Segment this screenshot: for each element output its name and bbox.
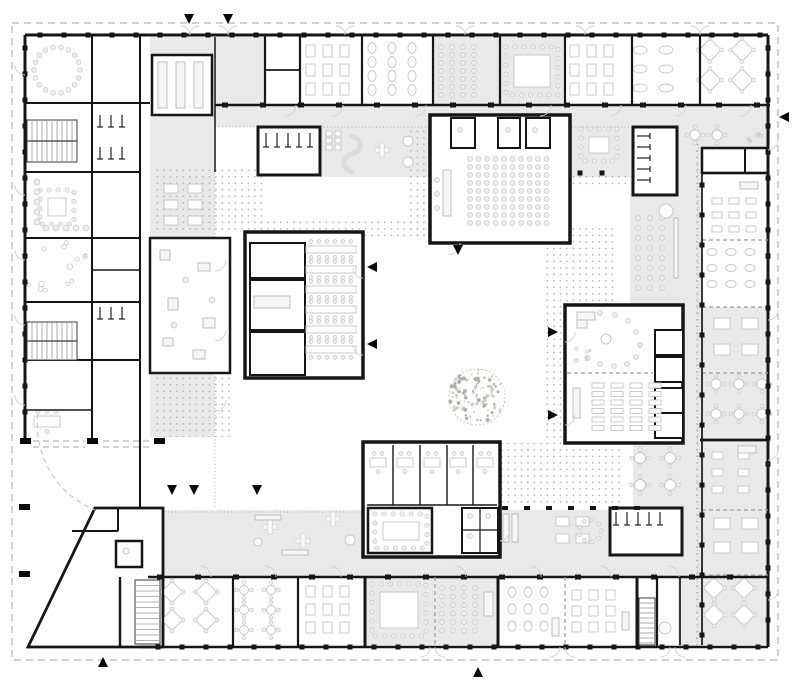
- furniture-round-table-1: [403, 136, 413, 146]
- cell-auditorium-3: [526, 118, 550, 148]
- paved-strip-auditorium: [410, 127, 430, 240]
- column: [154, 438, 165, 444]
- room-wedge-wc: [116, 541, 142, 567]
- furniture-tables-n3: [633, 46, 673, 92]
- driveway-arc: [37, 414, 95, 510]
- fixture-wedge-wc: [123, 548, 129, 554]
- wc-stalls-nw1: [97, 115, 125, 127]
- furniture-roundtables-s1: [235, 581, 281, 640]
- stair-southeast: [639, 598, 655, 645]
- furniture-ovals-n: [368, 43, 416, 96]
- furniture-west-item-3: [168, 298, 178, 310]
- wc-stalls-nw2: [97, 147, 125, 159]
- furniture-desks-s2: [572, 590, 615, 632]
- furniture-e-teacher-desk-2: [738, 446, 756, 453]
- floor-plan-canvas: [0, 0, 800, 683]
- furniture-office-desk-west: [34, 410, 60, 434]
- furniture-e-desks-1: [712, 198, 756, 232]
- furniture-corridor-circle: [659, 204, 673, 218]
- furniture-round-table-3: [345, 535, 355, 545]
- furniture-e-ovals: [707, 249, 755, 288]
- entrance-arrow: [779, 112, 789, 122]
- paved-area-west-2: [152, 375, 232, 437]
- entrance-arrow: [98, 657, 108, 667]
- furniture-west-item-2: [198, 263, 210, 271]
- cell-cafeteria-3: [250, 332, 305, 375]
- stair-west-2: [27, 322, 77, 360]
- entrance-arrow: [252, 485, 262, 495]
- furniture-bench-1: [282, 550, 308, 555]
- furniture-west-item-4: [203, 318, 215, 328]
- cell-auditorium-1: [451, 118, 475, 148]
- furniture-round-table-2: [403, 157, 413, 167]
- room-storage-northeast: [702, 148, 768, 173]
- furniture-square-table-nw: [38, 188, 76, 226]
- furniture-lectern-s: [484, 592, 493, 616]
- furniture-west-item-6: [193, 350, 205, 359]
- room-wc-northeast: [633, 127, 677, 195]
- entrance-arrow: [189, 485, 199, 495]
- stair-west-1: [27, 120, 77, 162]
- furniture-desks-s1: [306, 586, 349, 633]
- floor-plan-page: [0, 0, 800, 683]
- furniture-table-small-room: [659, 622, 671, 634]
- doorposts-nwing: [222, 103, 760, 108]
- room-wc-north: [258, 127, 320, 175]
- entrance-arrow: [367, 262, 377, 272]
- paved-terrace-south: [500, 443, 622, 507]
- cell-cafeteria-1: [250, 243, 305, 278]
- furniture-round-table-4: [254, 538, 262, 546]
- furniture-xtables-sw: [159, 579, 219, 633]
- furniture-desks-n1: [306, 45, 349, 95]
- zone-terrace-east: [633, 443, 702, 507]
- furniture-auditorium-podium: [443, 170, 451, 216]
- furniture-e-teacher-desk-1: [740, 182, 758, 189]
- furniture-ovals-s: [508, 587, 548, 631]
- furniture-desk-s2: [622, 612, 629, 630]
- furniture-shelf-2: [176, 62, 185, 108]
- stair-wedge: [135, 580, 160, 644]
- paved-court-east: [543, 302, 563, 443]
- furniture-music-table: [601, 334, 611, 344]
- furniture-playroom-scatter: [27, 241, 87, 293]
- furniture-shelf-east: [674, 218, 678, 278]
- furniture-chair-circle-nw: [32, 45, 83, 95]
- furniture-desk-s1: [552, 618, 559, 636]
- column: [87, 438, 98, 444]
- furniture-library-lectern: [573, 388, 580, 418]
- furniture-bench-2: [255, 515, 281, 520]
- entrance-arrow: [473, 667, 483, 677]
- furniture-desks-n2: [570, 45, 613, 95]
- furniture-lounge-shelf-2: [512, 514, 518, 542]
- courtyard-tree: [448, 369, 505, 425]
- furniture-piano-a: [577, 312, 595, 320]
- furniture-west-item-1: [160, 250, 170, 260]
- furniture-xtables-ne: [697, 37, 756, 94]
- furniture-west-item-5: [163, 338, 173, 346]
- cell-library-2: [655, 357, 683, 382]
- furniture-shelf-1: [158, 62, 167, 108]
- furniture-lounge-shelf-1: [503, 514, 509, 542]
- furniture-serving-counter: [254, 296, 290, 308]
- entrance-arrow: [167, 485, 177, 495]
- column: [20, 438, 31, 444]
- cell-auditorium-2: [498, 118, 520, 148]
- column: [19, 571, 30, 577]
- wc-stalls-w: [97, 307, 125, 319]
- door-arc: [550, 647, 560, 657]
- column: [19, 504, 30, 510]
- furniture-shelf-3: [194, 62, 203, 108]
- cell-library-1: [655, 330, 683, 355]
- room-wc-south: [610, 508, 682, 555]
- entrance-arrow: [367, 339, 377, 349]
- furniture-piano-b: [577, 320, 587, 328]
